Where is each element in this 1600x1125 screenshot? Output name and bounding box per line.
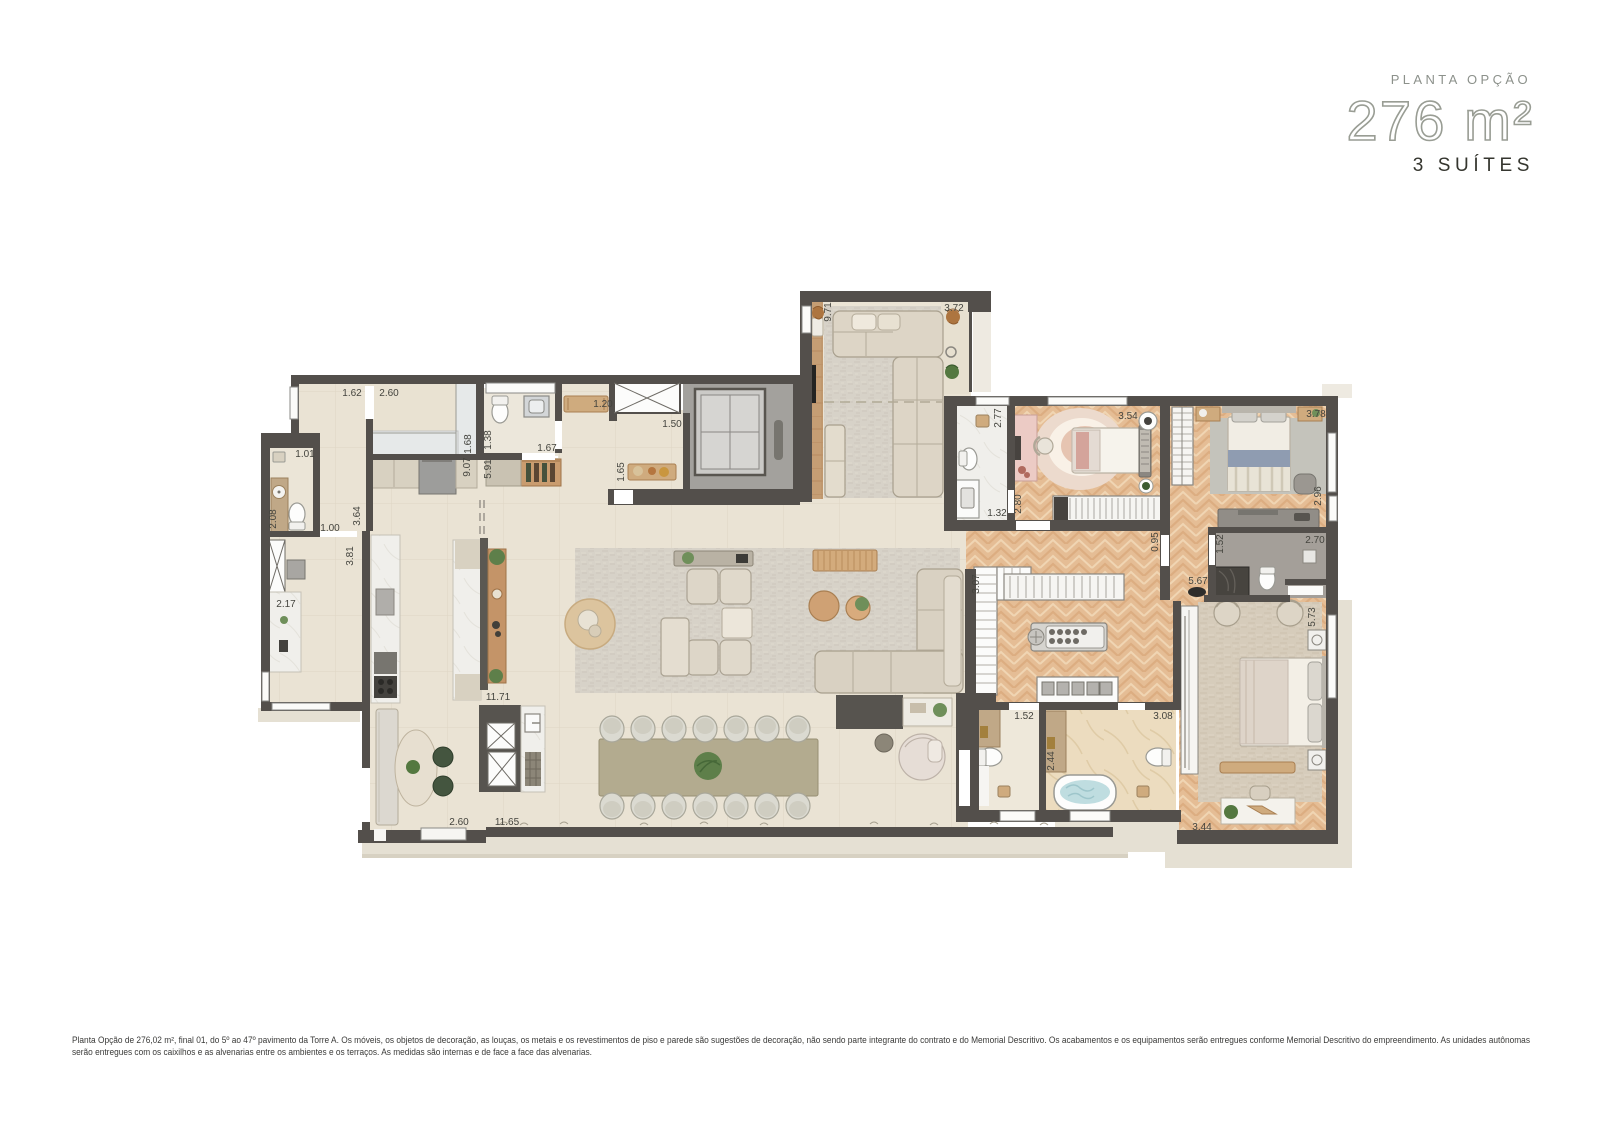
svg-text:2.44: 2.44	[1046, 751, 1057, 771]
svg-text:1.38: 1.38	[483, 430, 494, 450]
svg-text:2.96: 2.96	[1313, 486, 1324, 506]
svg-text:serão entregues com os caixilh: serão entregues com os caixilhos e as al…	[72, 1047, 592, 1057]
svg-text:1.65: 1.65	[616, 462, 627, 482]
svg-text:2.17: 2.17	[276, 599, 296, 610]
svg-text:2.08: 2.08	[268, 509, 279, 529]
svg-text:276 m²: 276 m²	[1347, 89, 1535, 152]
svg-text:1.68: 1.68	[463, 434, 474, 454]
svg-text:3.81: 3.81	[345, 546, 356, 566]
svg-text:3.08: 3.08	[1153, 711, 1173, 722]
svg-text:11.65: 11.65	[495, 817, 520, 828]
svg-text:1.01: 1.01	[295, 449, 315, 460]
svg-text:1.52: 1.52	[1014, 711, 1034, 722]
svg-text:3.07: 3.07	[971, 574, 982, 594]
svg-text:2.80: 2.80	[1013, 494, 1024, 514]
svg-text:1.67: 1.67	[537, 443, 557, 454]
svg-text:5.91: 5.91	[483, 459, 494, 479]
svg-text:5.73: 5.73	[1307, 607, 1318, 627]
svg-text:2.70: 2.70	[1305, 535, 1325, 546]
svg-text:9.71: 9.71	[823, 302, 834, 322]
svg-text:2.77: 2.77	[993, 408, 1004, 428]
svg-text:9.07: 9.07	[462, 457, 473, 477]
svg-text:2.60: 2.60	[449, 817, 469, 828]
svg-text:1.52: 1.52	[1215, 534, 1226, 554]
svg-text:2.60: 2.60	[379, 388, 399, 399]
svg-text:1.62: 1.62	[342, 388, 362, 399]
svg-text:1.00: 1.00	[320, 523, 340, 534]
svg-text:11.71: 11.71	[486, 692, 511, 703]
svg-text:1.50: 1.50	[662, 419, 682, 430]
svg-text:3.72: 3.72	[944, 303, 964, 314]
svg-text:1.20: 1.20	[593, 399, 613, 410]
svg-text:5.67: 5.67	[1188, 576, 1208, 587]
svg-text:Planta Opção de 276,02 m², fin: Planta Opção de 276,02 m², final 01, do …	[72, 1035, 1530, 1045]
svg-text:3.78: 3.78	[1306, 409, 1326, 420]
svg-text:3.54: 3.54	[1118, 411, 1138, 422]
svg-text:3.44: 3.44	[1192, 822, 1212, 833]
svg-text:0.95: 0.95	[1150, 532, 1161, 552]
svg-text:PLANTA OPÇÃO: PLANTA OPÇÃO	[1391, 72, 1531, 87]
svg-text:3 SUÍTES: 3 SUÍTES	[1413, 155, 1534, 176]
svg-text:1.32: 1.32	[987, 508, 1007, 519]
svg-text:3.64: 3.64	[352, 506, 363, 526]
